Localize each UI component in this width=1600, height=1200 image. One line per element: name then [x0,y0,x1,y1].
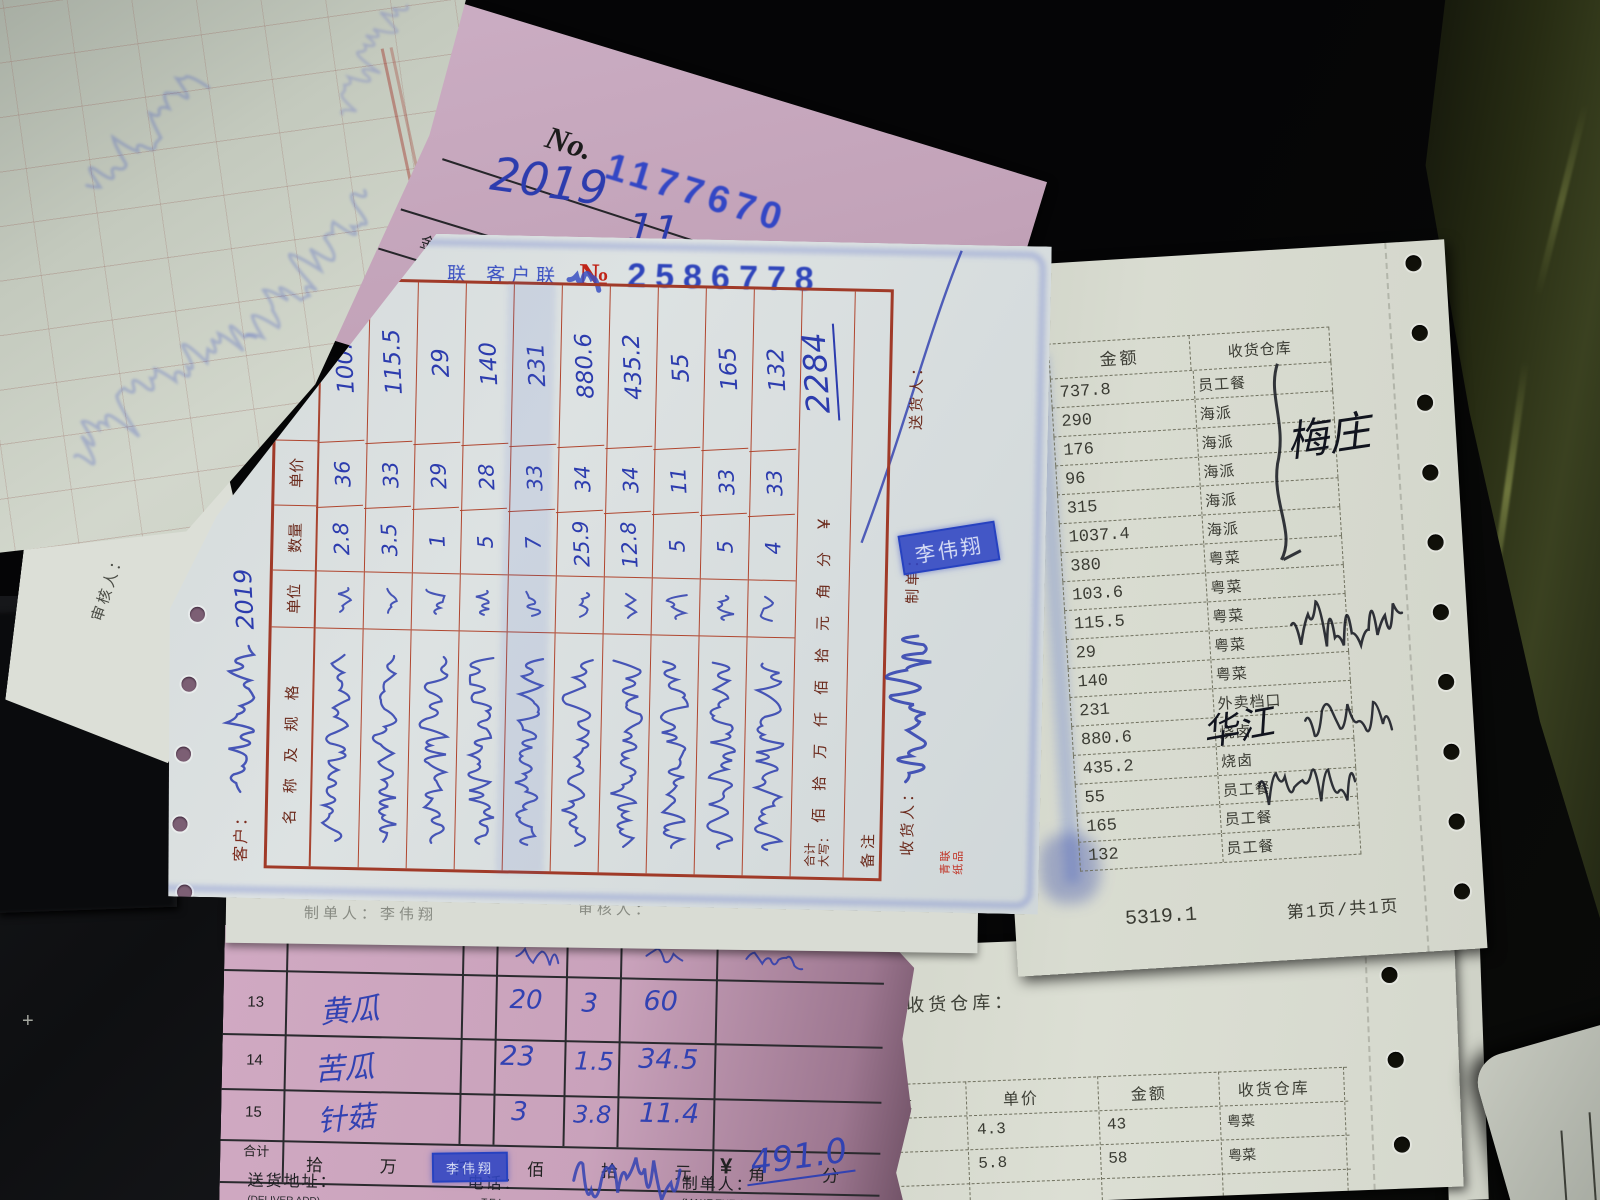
bleed-through-scribble [56,301,263,480]
cell-price: 34 [605,446,655,513]
item-name-scribble [647,634,699,874]
tractor-hole [1381,967,1398,984]
cell-qty: 2.8 [316,505,366,572]
tractor-hole [1453,883,1470,900]
handwriting-scribble [663,593,688,621]
handwriting-scribble [367,654,403,845]
page-indicator: 第1页/共1页 [1286,891,1400,924]
cell-qty: 1 [412,507,462,574]
tractor-hole [1417,394,1434,411]
col-unit: 单位 [272,569,315,627]
cell-qty: 23 [500,1041,535,1073]
handwriting-scribble [607,659,643,850]
signature-scribble [1288,591,1406,653]
tractor-hole [1443,743,1460,760]
device-marking [1589,1112,1597,1200]
item-name-scribble [551,632,603,872]
address-label: 送货地址： (DELIVER ADD) [247,1174,338,1200]
handwriting-scribble [471,589,496,617]
warehouse-title: 收货仓库： [906,987,1017,1017]
customer-label: 客户： [227,808,252,863]
unit-scribble [364,571,412,629]
cell-qty: 3.5 [364,506,414,573]
cell-qty: 25.9 [556,510,606,577]
cell-amount: 58 [1108,1149,1128,1168]
item-name-scribble [599,633,651,873]
unit-scribble [748,579,796,637]
summary-total: 5319.1 [1124,904,1197,931]
address-label-cn: 送货地址： [247,1173,337,1192]
cell-price: 29 [413,442,463,509]
cell-amount: 880.6 [557,285,612,447]
receiver-signature [880,633,935,784]
item-name: 苦瓜 [313,1042,376,1090]
invoice-table-rotated: 客户： 2019 名称及规格 单位 数量 单价 金额 [214,275,1032,884]
col-price: 单价 [274,439,317,505]
handwriting-scribble [319,652,355,843]
total-label: 合计 [236,1143,276,1159]
unit-scribble [412,572,460,630]
auditor-label: 审核人： [86,549,129,624]
cell-dept: 粤菜 [1228,1144,1257,1165]
cell-qty: 5 [700,513,750,580]
total-digit-scale: 佰拾万仟佰拾元角分 [807,535,834,823]
handwritten-total: 2284 [794,324,840,424]
cell-amount: 29 [413,282,468,444]
item-name-scribble [695,635,747,875]
unit-scribble [316,570,364,628]
name-stamp: 李伟翔 [432,1152,508,1183]
printer-mark: 青联 纸品 [940,848,966,875]
handwriting-scribble [567,591,592,619]
customer-scribble [222,643,261,794]
cell-qty: 12.8 [604,511,654,578]
cell-amount: 60 [643,986,678,1018]
cell-amount: 43 [1107,1115,1127,1134]
cell-price: 36 [317,440,367,507]
tractor-hole [1387,1052,1404,1069]
receiver-label: 收货人： [896,784,919,856]
handwriting-scribble [655,660,691,851]
item-name-scribble [311,627,363,867]
total-label: 合计 大写： [802,823,832,878]
row-no: 15 [245,1103,262,1120]
total-label-1: 合计 [802,843,816,867]
handwriting-scribble [615,592,640,620]
cell-amount: 132 [749,289,804,451]
cell-amount: 435.2 [605,286,660,448]
handwriting-scribble [759,595,784,623]
cell-price: 4.3 [977,1120,1006,1139]
cell-qty: 5 [652,512,702,579]
cell-amount: 34.5 [638,1044,699,1076]
item-name: 黄瓜 [318,983,381,1032]
clipped-handwriting [744,948,804,971]
cell-amount: 55 [653,287,708,449]
cell-price: 3.8 [573,1100,612,1129]
unit-scribble [604,576,652,634]
row-no: 14 [246,1051,263,1068]
handwriting-scribble [751,662,787,853]
cell-price: 33 [365,441,415,508]
handwritten-annotation: 梅庄 [1282,397,1374,470]
currency-symbol: ¥ [813,519,834,529]
item-name-scribble [743,636,795,876]
device-marking [1560,1131,1567,1200]
col-price: 单价 [1002,1085,1039,1110]
cell-price: 1.5 [574,1046,614,1076]
invoice-rows: 2.8 36 100.8 3.5 33 115.5 [311,280,803,876]
cell-amount: 11.4 [639,1098,700,1130]
pink-delivery-form: 13 黄瓜 20 3 60 14 苦瓜 23 1.5 34.5 15 针菇 3 … [219,925,915,1200]
tractor-hole [1432,604,1449,621]
handwriting-scribble [463,656,499,847]
item-name: 针菇 [315,1093,377,1141]
unit-scribble [556,575,604,633]
printer-mark-2: 纸品 [952,849,965,875]
item-name-scribble [407,629,459,869]
cell-qty: 3 [511,1097,528,1127]
clipped-handwriting [514,945,560,968]
tractor-hole [1448,813,1465,830]
printer-mark-1: 青联 [940,848,953,874]
address-label-en: (DELIVER ADD) [247,1194,320,1200]
cell-price: 33 [749,449,799,516]
col-qty: 数量 [273,504,316,570]
bottom-right-table: 数量 单价 金额 收货仓库 4.3 43 粤菜 5.8 58 粤菜 [847,1067,1351,1200]
cell-qty: 4 [748,514,798,581]
tractor-hole [1405,255,1422,272]
handwriting-scribble [559,658,595,849]
right-summary-sheet: 金额 收货仓库 737.8 员工餐 290 海派 176 [975,239,1487,976]
handwriting-scribble [415,655,451,846]
perforation-line [1364,928,1376,1190]
handwriting-scribble [375,587,400,615]
tractor-hole [1427,534,1444,551]
handwriting-scribble [327,586,352,614]
tractor-hole [1422,464,1439,481]
unit-scribble [652,577,700,635]
total-label-2: 大写： [817,831,832,867]
maker-label: 制单人： (MAKE THE SINGLE) [681,1177,779,1200]
col-amount: 金额 [1130,1080,1167,1105]
handwritten-year: 2019 [229,568,260,630]
handwriting-scribble [423,588,448,616]
cell-price: 3 [581,988,598,1018]
cell-qty: 20 [509,985,543,1016]
tractor-hole [1411,324,1428,341]
maker-line: 制单人：李伟翔 [304,902,437,925]
cell-price: 34 [557,445,607,512]
handwriting-scribble [711,594,736,622]
col-name: 名称及规格 [267,626,314,866]
cell-price: 5.8 [978,1154,1007,1173]
cell-price: 33 [701,448,751,515]
handwritten-year: 2019 [487,147,610,217]
unit-scribble [700,578,748,636]
signature-scribble [1302,695,1394,740]
invoice-grid: 名称及规格 单位 数量 单价 金额 2.8 36 100.8 [264,276,894,881]
tractor-hole [1394,1136,1411,1153]
col-dept: 收货仓库 [1237,1074,1310,1101]
item-name-scribble [359,628,411,868]
bag-highlight [1486,361,1529,619]
bag-highlight [1534,102,1589,298]
cell-dept: 粤菜 [1227,1110,1256,1131]
tractor-hole [1438,674,1455,691]
signature-scribble [1256,758,1359,810]
grey-device [1471,999,1600,1200]
paper-speck: + [22,1010,34,1033]
bleed-through-scribble [72,63,216,201]
cell-amount: 165 [701,288,756,450]
photo-of-receipts: + 收货仓库： 数量 单价 金额 收货仓库 4.3 43 粤菜 5.8 58 粤… [0,0,1600,1200]
maker-label-cn: 制单人： [681,1176,753,1195]
handwriting-scribble [703,661,739,852]
row-no: 13 [247,993,264,1010]
signature-scribble [571,1150,682,1200]
cell-price: 11 [653,447,703,514]
deliverer-label: 送货人： [905,358,928,430]
